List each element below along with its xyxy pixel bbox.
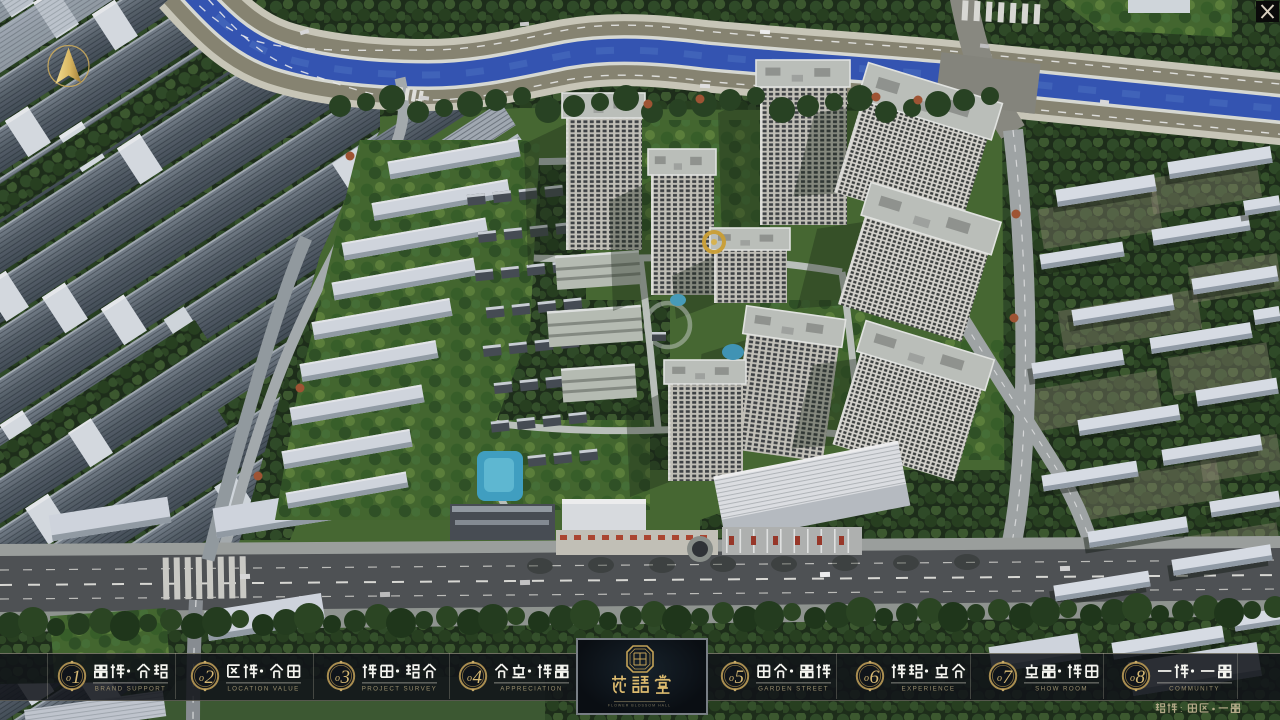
svg-text:8: 8 bbox=[1136, 667, 1146, 688]
svg-text:LOCATION VALUE: LOCATION VALUE bbox=[227, 686, 299, 693]
svg-text:o: o bbox=[66, 673, 71, 684]
svg-text:o: o bbox=[729, 673, 734, 684]
svg-text::: : bbox=[1180, 704, 1183, 714]
svg-text:o: o bbox=[335, 673, 340, 684]
svg-text:BRAND SUPPORT: BRAND SUPPORT bbox=[95, 686, 166, 693]
svg-text:APPRECIATION: APPRECIATION bbox=[500, 686, 562, 693]
svg-text:o: o bbox=[199, 673, 204, 684]
svg-text:3: 3 bbox=[340, 667, 351, 688]
svg-text:o: o bbox=[1130, 673, 1135, 684]
svg-text:PROJECT SURVEY: PROJECT SURVEY bbox=[362, 686, 437, 693]
svg-text:4: 4 bbox=[473, 667, 483, 688]
svg-text:GARDEN STREET: GARDEN STREET bbox=[758, 686, 829, 693]
svg-text:FLOWER BLOSSOM HALL: FLOWER BLOSSOM HALL bbox=[608, 704, 671, 708]
svg-text:o: o bbox=[864, 673, 869, 684]
svg-text:EXPERIENCE: EXPERIENCE bbox=[902, 686, 956, 693]
svg-text:5: 5 bbox=[735, 667, 745, 688]
svg-text:SHOW ROOM: SHOW ROOM bbox=[1035, 686, 1088, 693]
svg-text:o: o bbox=[467, 673, 472, 684]
svg-text:COMMUNITY: COMMUNITY bbox=[1169, 686, 1220, 693]
svg-text:7: 7 bbox=[1003, 667, 1014, 688]
svg-text:o: o bbox=[997, 673, 1002, 684]
svg-text:6: 6 bbox=[870, 667, 880, 688]
svg-text:2: 2 bbox=[205, 667, 215, 688]
svg-text:1: 1 bbox=[72, 667, 82, 688]
